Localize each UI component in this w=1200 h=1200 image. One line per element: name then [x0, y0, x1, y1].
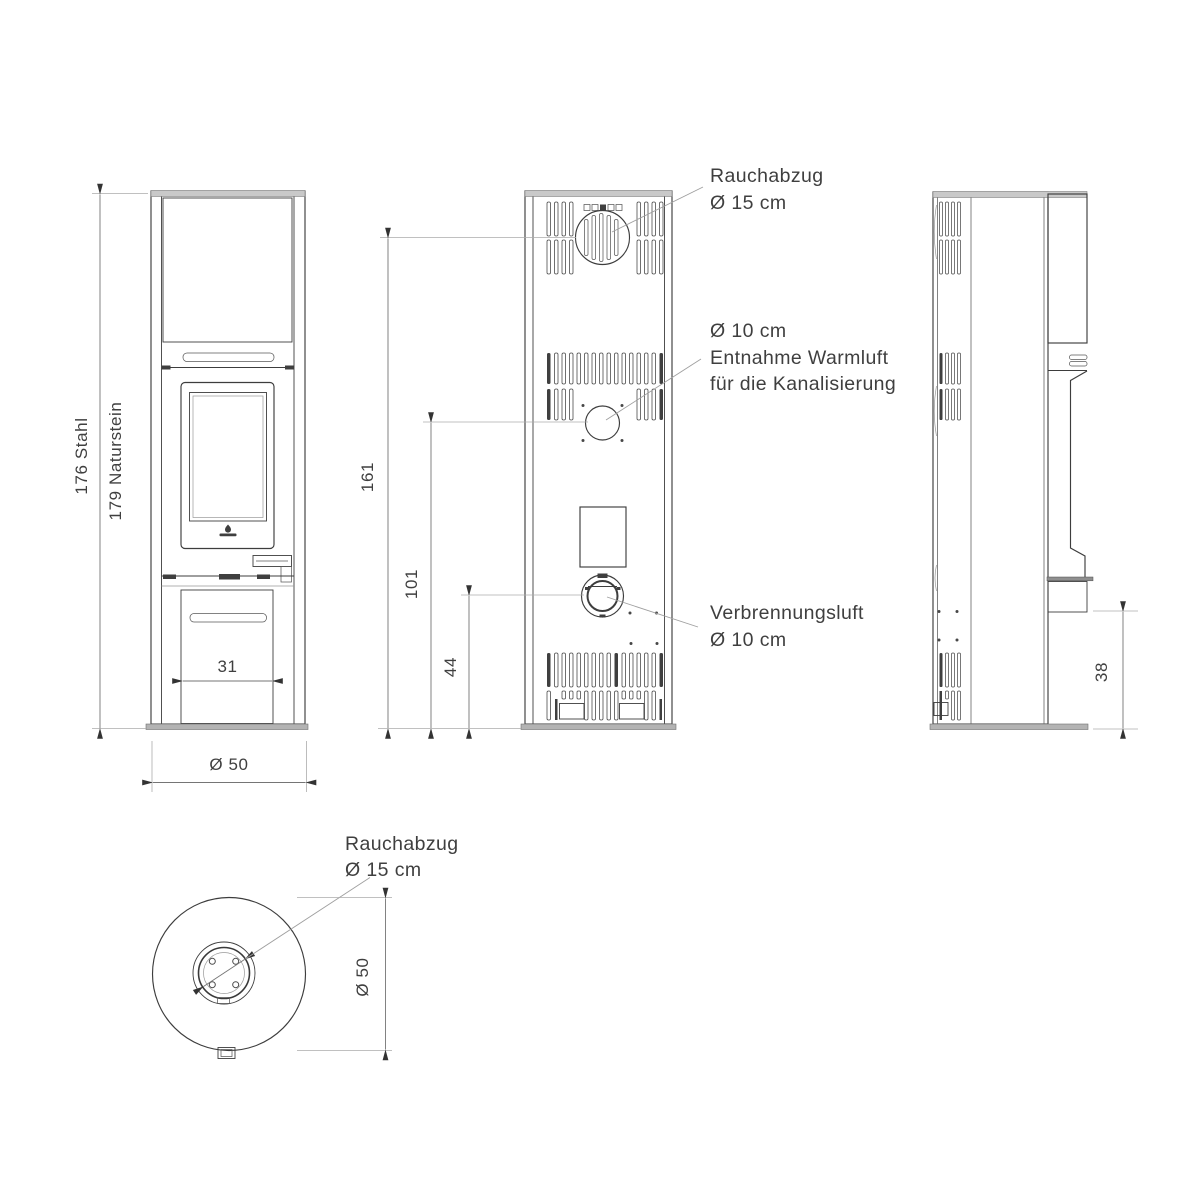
rear-top-vents	[547, 202, 663, 274]
side-door-ledge	[1047, 577, 1093, 581]
brand-logo-icon	[220, 525, 237, 537]
flue-label-line2: Ø 15 cm	[710, 192, 787, 214]
dim-height-stone: 179 Naturstein	[106, 402, 125, 521]
rear-middle-vents	[547, 353, 663, 420]
dim-ledge-height: 38	[1092, 662, 1111, 682]
ledge-height-dimension: 38	[1092, 611, 1138, 729]
inspection-hatch	[580, 507, 626, 567]
front-top-panel	[163, 198, 292, 342]
warm-air-label-line3: für die Kanalisierung	[710, 373, 896, 395]
warm-air-height-dimension: 101	[402, 422, 588, 728]
side-view	[930, 192, 1093, 730]
rear-top-band	[525, 191, 672, 197]
top-body-circle	[153, 898, 306, 1051]
dim-flue-height: 161	[358, 462, 377, 492]
dim-top-diameter: Ø 50	[353, 957, 372, 996]
combustion-label-line2: Ø 10 cm	[710, 629, 787, 651]
dim-height-steel: 176 Stahl	[72, 417, 91, 494]
door-window	[190, 393, 267, 522]
front-view	[146, 191, 308, 730]
rear-base-plate	[521, 724, 676, 730]
top-flue-label-line1: Rauchabzug	[345, 833, 459, 855]
side-base-plate	[930, 724, 1088, 730]
combustion-air-inlet-circle	[582, 574, 659, 646]
combustion-label-line1: Verbrennungsluft	[710, 602, 864, 624]
flue-label-line1: Rauchabzug	[710, 165, 824, 187]
side-door-profile	[1071, 371, 1088, 577]
side-vents	[934, 202, 961, 720]
side-top-panel	[1048, 194, 1087, 343]
dim-front-diameter: Ø 50	[209, 755, 248, 774]
drawing-sheet: 176 Stahl 179 Naturstein 31 Ø 50	[0, 0, 1200, 1200]
combustion-air-label: Verbrennungsluft Ø 10 cm	[607, 597, 864, 651]
front-height-dimension: 176 Stahl 179 Naturstein	[72, 194, 148, 729]
side-ash-lip	[1048, 582, 1087, 613]
side-grille-slot-upper	[1070, 355, 1088, 360]
technical-drawing: 176 Stahl 179 Naturstein 31 Ø 50	[0, 0, 1200, 1200]
flue-height-dimension: 161	[358, 238, 576, 729]
top-pipe-tab	[218, 1048, 235, 1059]
front-diameter-dimension: Ø 50	[152, 741, 307, 792]
top-flue-label: Rauchabzug Ø 15 cm	[204, 833, 459, 987]
side-body-outline	[933, 192, 1048, 724]
front-top-band	[151, 191, 305, 197]
warm-air-label-line1: Ø 10 cm	[710, 320, 787, 342]
top-diameter-dimension: Ø 50	[297, 898, 392, 1051]
front-body-outline	[151, 191, 305, 724]
rear-left-foot	[560, 704, 585, 720]
front-base-plate	[146, 724, 308, 730]
warm-air-label: Ø 10 cm Entnahme Warmluft für die Kanali…	[606, 320, 896, 420]
dim-base-opening: 31	[217, 657, 237, 676]
dim-combustion-height: 44	[441, 657, 460, 677]
top-flue-label-line2: Ø 15 cm	[345, 859, 422, 881]
rear-view	[521, 191, 676, 730]
drawer-handle-slot	[190, 614, 267, 623]
dim-warm-air-height: 101	[402, 569, 421, 599]
door-handle-bracket	[281, 567, 292, 583]
rear-bottom-vents	[547, 653, 663, 720]
base-opening-dimension: 31	[183, 657, 272, 681]
side-grille-slot-lower	[1070, 362, 1088, 367]
top-view	[153, 898, 306, 1059]
combustion-height-dimension: 44	[441, 595, 584, 728]
fire-door-frame	[181, 383, 274, 549]
warm-air-label-line2: Entnahme Warmluft	[710, 347, 889, 369]
warm-air-grille-slot	[183, 353, 274, 362]
rear-flue-label: Rauchabzug Ø 15 cm	[612, 165, 824, 232]
rear-right-foot	[620, 704, 645, 720]
warm-air-outlet-circle	[582, 404, 624, 442]
hearth-edge	[162, 574, 295, 586]
flue-outlet-circle	[576, 205, 630, 265]
